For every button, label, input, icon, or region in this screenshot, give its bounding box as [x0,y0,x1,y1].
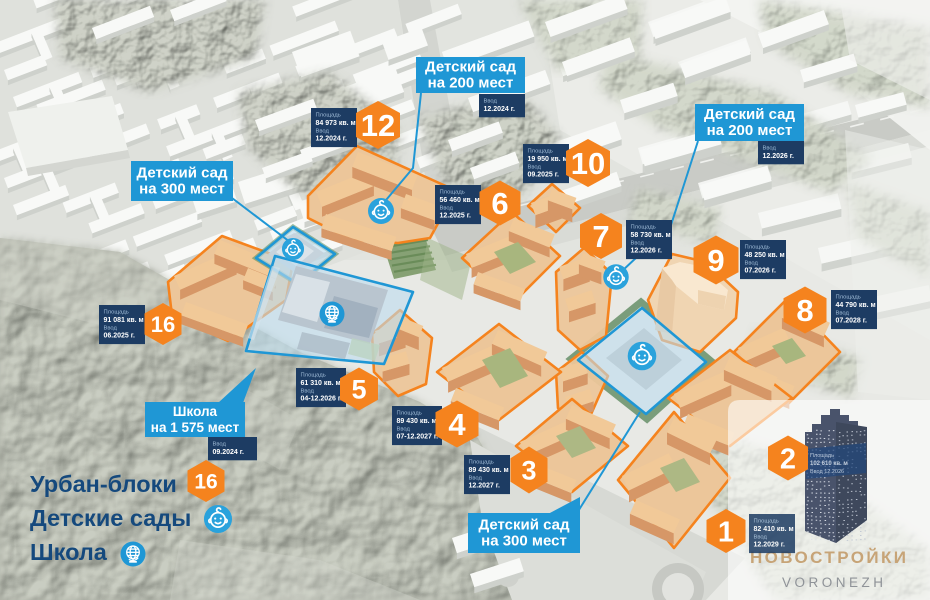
svg-text:9: 9 [707,243,724,278]
svg-text:Ввод: Ввод [631,240,645,246]
svg-text:Площадь: Площадь [301,373,326,379]
svg-text:12: 12 [361,108,395,143]
svg-text:5: 5 [351,375,366,405]
svg-text:Детские сады: Детские сады [30,505,191,531]
svg-text:Ввод: Ввод [763,146,777,152]
svg-text:44 790 кв. м: 44 790 кв. м [836,302,876,309]
svg-text:58 730 кв. м: 58 730 кв. м [631,232,671,239]
svg-text:на 200 мест: на 200 мест [707,122,793,139]
svg-text:12.2026 г.: 12.2026 г. [631,248,662,255]
svg-text:Детский сад: Детский сад [478,517,569,534]
svg-text:04-12.2026 г.: 04-12.2026 г. [301,396,343,403]
svg-text:48 250 кв. м: 48 250 кв. м [745,252,785,259]
svg-text:VORONEZH: VORONEZH [782,575,887,590]
svg-text:Детский сад: Детский сад [704,106,795,123]
svg-text:на 1 575 мест: на 1 575 мест [151,420,240,435]
svg-text:12.2027 г.: 12.2027 г. [469,483,500,490]
svg-text:Площадь: Площадь [810,453,834,459]
svg-text:Ввод: Ввод [213,442,227,448]
svg-text:12.2024 г.: 12.2024 г. [484,106,515,113]
svg-text:Площадь: Площадь [469,460,494,466]
svg-text:Площадь: Площадь [528,149,553,155]
svg-text:Ввод: Ввод [469,475,483,481]
svg-text:3: 3 [521,456,536,486]
svg-text:Ввод: Ввод [836,310,850,316]
svg-text:84 973 кв. м: 84 973 кв. м [316,120,356,127]
svg-text:Ввод: Ввод [745,260,759,266]
svg-text:16: 16 [151,312,175,337]
svg-text:Площадь: Площадь [631,225,656,231]
svg-text:на 200 мест: на 200 мест [428,75,514,92]
svg-text:1: 1 [718,516,734,548]
svg-text:61 310 кв. м: 61 310 кв. м [301,380,341,387]
svg-text:Ввод: Ввод [301,388,315,394]
svg-text:Площадь: Площадь [397,411,422,417]
svg-text:82 410 кв. м: 82 410 кв. м [754,526,794,533]
svg-text:102 610 кв. м: 102 610 кв. м [810,461,848,467]
svg-text:09.2024 г.: 09.2024 г. [213,449,244,456]
svg-text:6: 6 [491,186,508,221]
svg-text:Ввод: Ввод [440,205,454,211]
svg-text:Ввод: Ввод [754,534,768,540]
svg-text:19 950 кв. м: 19 950 кв. м [528,156,568,163]
svg-text:Площадь: Площадь [440,190,465,196]
svg-text:89 430 кв. м: 89 430 кв. м [397,418,437,425]
svg-text:Площадь: Площадь [754,519,779,525]
svg-text:Урбан-блоки: Урбан-блоки [30,471,177,497]
svg-text:Площадь: Площадь [836,295,861,301]
svg-text:89 430 кв. м: 89 430 кв. м [469,467,509,474]
svg-text:Ввод: Ввод [528,164,542,170]
svg-text:12.2029 г.: 12.2029 г. [754,542,785,549]
svg-text:09.2025 г.: 09.2025 г. [528,172,559,179]
svg-text:07.2028 г.: 07.2028 г. [836,318,867,325]
svg-text:на 300 мест: на 300 мест [139,181,225,198]
svg-text:Школа: Школа [173,404,218,419]
svg-text:8: 8 [796,293,813,328]
svg-text:4: 4 [448,407,466,442]
svg-text:Ввод: Ввод [484,99,498,105]
svg-text:16: 16 [194,471,217,494]
svg-text:Детский сад: Детский сад [136,165,227,182]
svg-text:Ввод 12.2026: Ввод 12.2026 [810,469,844,475]
svg-text:12.2026 г.: 12.2026 г. [763,153,794,160]
svg-text:Ввод: Ввод [397,426,411,432]
svg-text:Школа: Школа [30,539,108,565]
svg-text:на 300 мест: на 300 мест [481,533,567,550]
svg-text:12.2024 г.: 12.2024 г. [316,136,347,143]
svg-text:06.2025 г.: 06.2025 г. [104,333,135,340]
svg-text:91 081 кв. м: 91 081 кв. м [104,317,144,324]
svg-text:2: 2 [780,443,796,475]
svg-text:10: 10 [571,146,605,181]
svg-text:Площадь: Площадь [104,310,129,316]
svg-text:Детский сад: Детский сад [425,59,516,76]
svg-text:Ввод: Ввод [104,325,118,331]
svg-text:07-12.2027 г.: 07-12.2027 г. [397,434,439,441]
svg-text:Площадь: Площадь [316,113,341,119]
svg-text:7: 7 [592,219,609,254]
svg-text:07.2026 г.: 07.2026 г. [745,268,776,275]
svg-text:56 460 кв. м: 56 460 кв. м [440,197,480,204]
svg-text:Ввод: Ввод [316,128,330,134]
svg-text:Площадь: Площадь [745,245,770,251]
svg-text:12.2025 г.: 12.2025 г. [440,213,471,220]
